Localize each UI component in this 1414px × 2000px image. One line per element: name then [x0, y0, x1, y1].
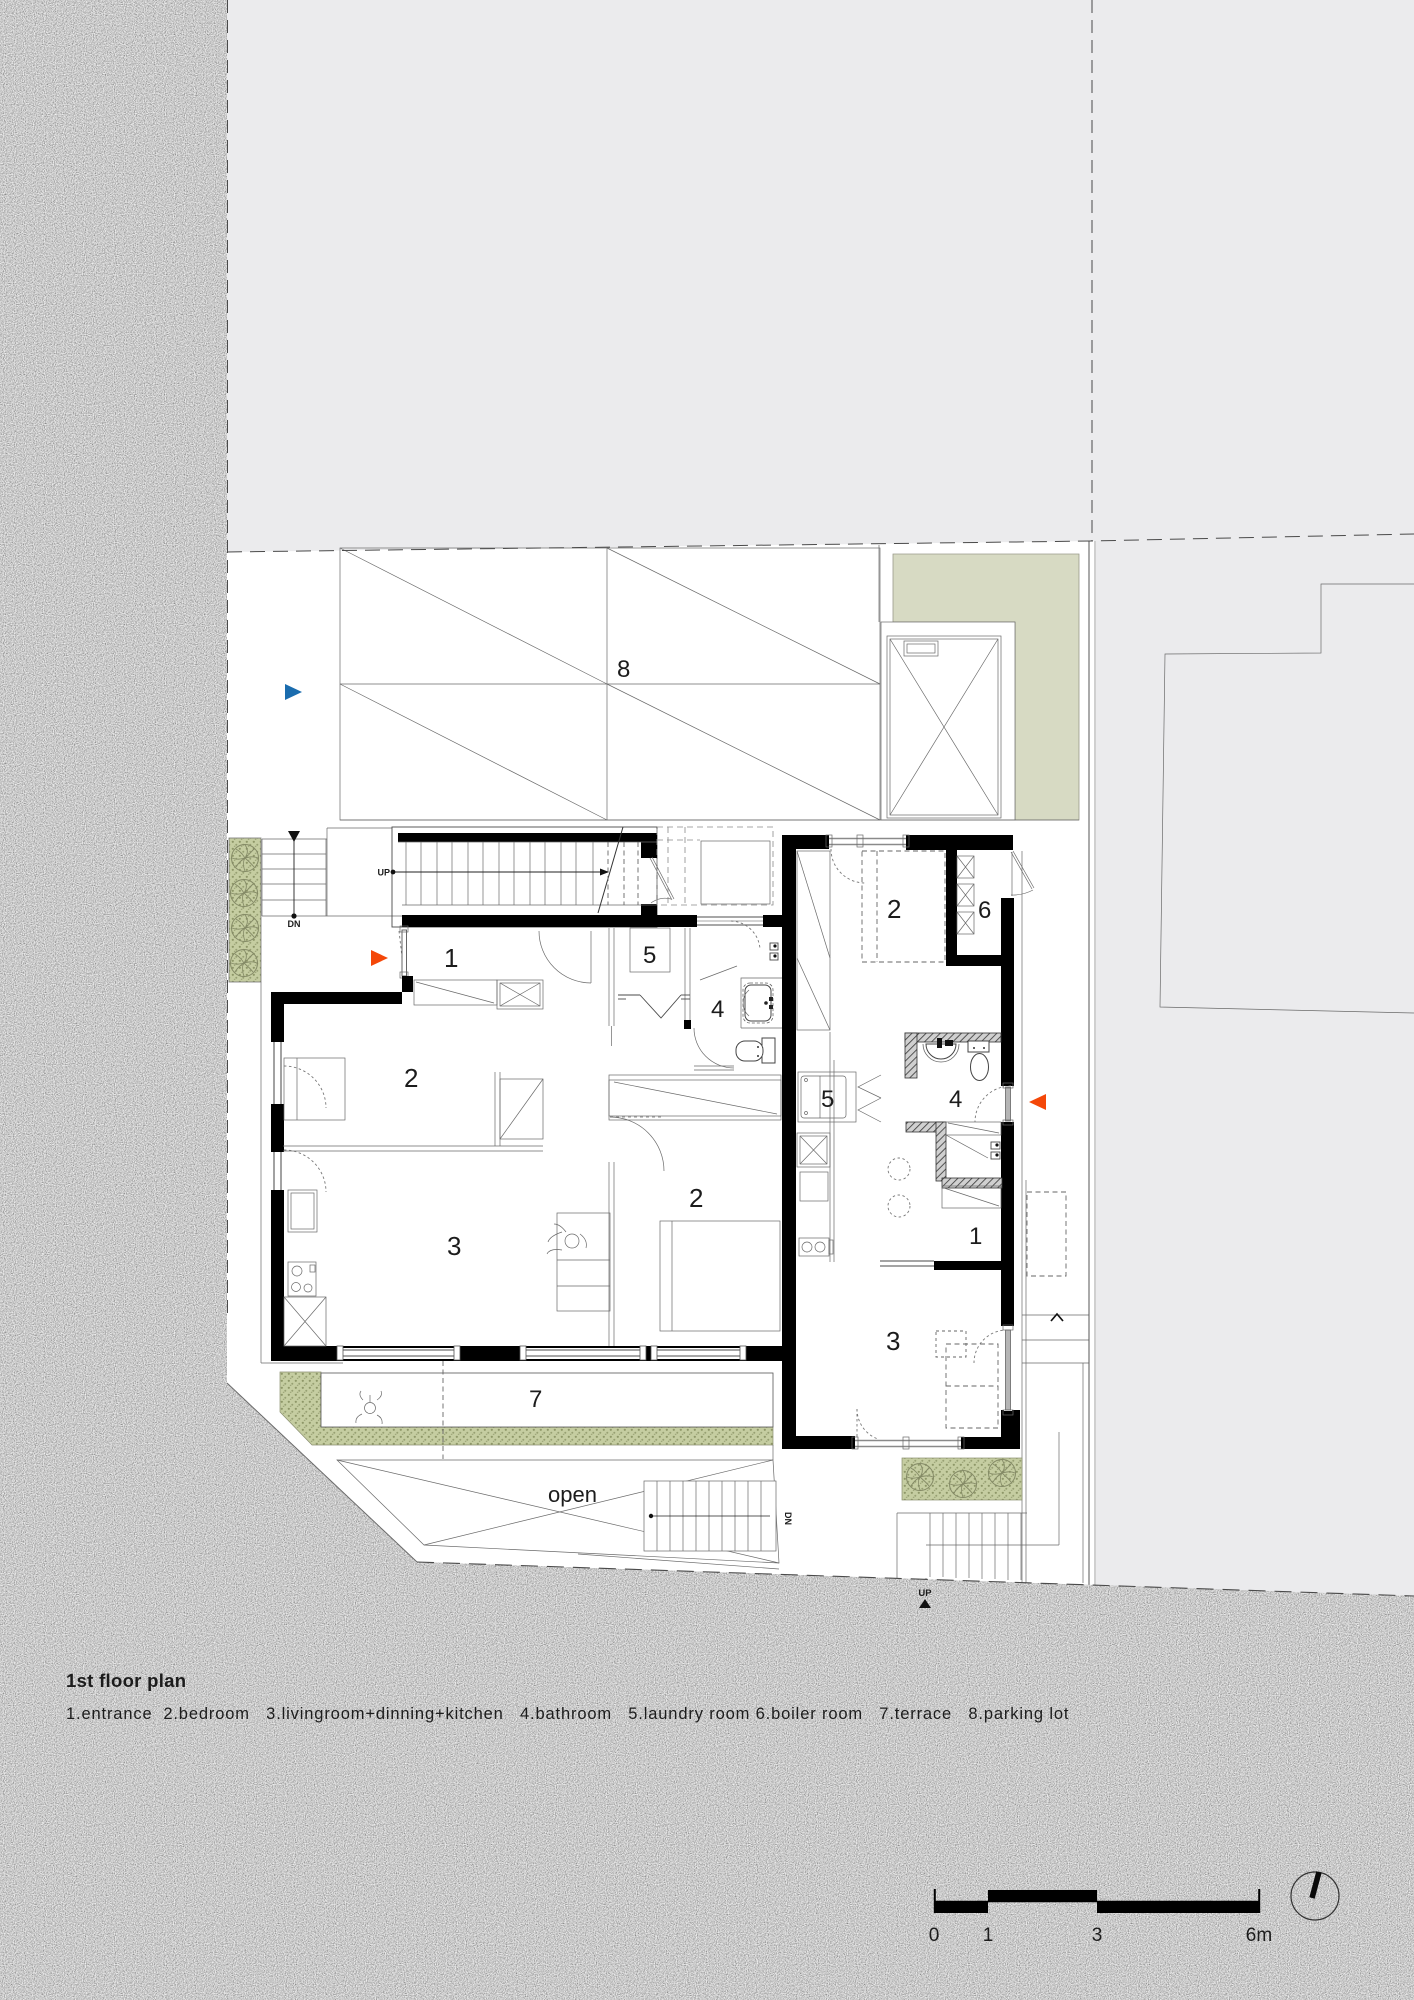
- svg-text:4: 4: [711, 996, 724, 1023]
- svg-text:0: 0: [929, 1925, 940, 1946]
- svg-text:UP: UP: [377, 868, 390, 878]
- svg-text:1.entrance 2.bedroom 3.livi: 1.entrance 2.bedroom 3.livingroom+dinnin…: [66, 1705, 1069, 1723]
- svg-text:6: 6: [978, 897, 991, 924]
- svg-text:1: 1: [983, 1925, 994, 1946]
- svg-text:1st floor plan: 1st floor plan: [66, 1670, 186, 1691]
- svg-text:6m: 6m: [1246, 1925, 1272, 1946]
- svg-text:2: 2: [689, 1183, 703, 1213]
- svg-text:1: 1: [444, 943, 458, 973]
- svg-text:4: 4: [949, 1086, 962, 1113]
- svg-text:1: 1: [969, 1223, 982, 1250]
- svg-text:3: 3: [886, 1326, 900, 1356]
- svg-text:UP: UP: [918, 1588, 932, 1599]
- svg-text:3: 3: [447, 1231, 461, 1261]
- svg-text:open: open: [548, 1482, 597, 1507]
- svg-text:7: 7: [529, 1386, 542, 1413]
- svg-text:5: 5: [821, 1086, 834, 1113]
- svg-text:5: 5: [643, 942, 656, 969]
- svg-text:2: 2: [404, 1063, 418, 1093]
- svg-text:3: 3: [1092, 1925, 1103, 1946]
- svg-text:DN: DN: [783, 1512, 793, 1525]
- svg-text:8: 8: [617, 656, 630, 683]
- svg-text:2: 2: [887, 894, 901, 924]
- svg-text:DN: DN: [288, 919, 301, 929]
